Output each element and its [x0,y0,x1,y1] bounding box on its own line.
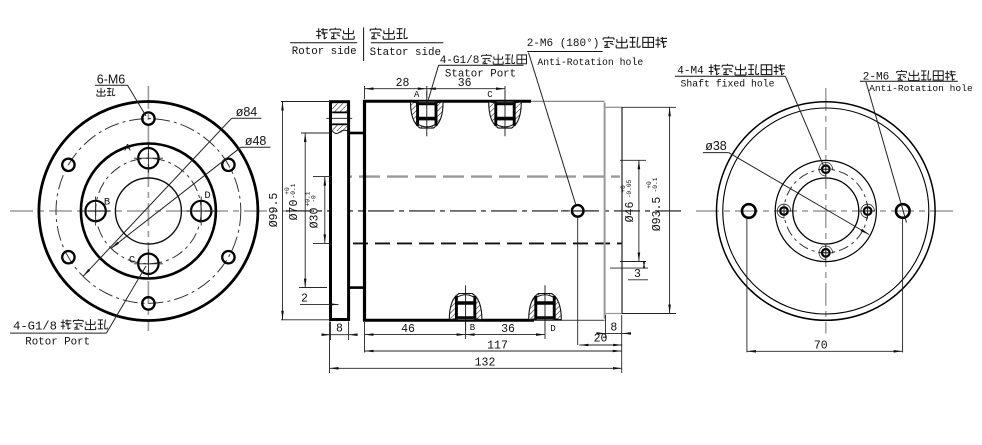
svg-text:36: 36 [501,323,515,336]
svg-text:70: 70 [814,340,828,353]
svg-text:-0.1: -0.1 [652,177,659,192]
svg-text:4-G1/8: 4-G1/8 [13,320,57,334]
svg-text:Ø99.5: Ø99.5 [268,193,281,228]
svg-text:4-M4: 4-M4 [677,66,704,78]
svg-text:8: 8 [336,323,343,336]
svg-text:Ø46: Ø46 [624,202,637,223]
svg-text:Shaft fixed hole: Shaft fixed hole [680,78,774,89]
svg-text:Rotor Port: Rotor Port [25,337,90,349]
svg-text:Anti-Rotation hole: Anti-Rotation hole [537,57,643,68]
svg-text:C: C [129,255,135,267]
svg-text:Stator side: Stator side [370,47,441,59]
svg-text:A: A [414,90,420,100]
svg-text:B: B [470,323,476,333]
svg-text:D: D [204,190,210,202]
svg-text:117: 117 [487,339,508,352]
svg-text:B: B [104,197,110,209]
svg-text:ø38: ø38 [705,139,727,153]
svg-text:-0: -0 [311,195,318,203]
svg-text:2: 2 [301,293,308,306]
svg-text:46: 46 [401,323,415,336]
svg-text:Ø93.5: Ø93.5 [651,197,664,232]
svg-text:-0.05: -0.05 [626,179,633,198]
svg-text:Anti-Rotation hole: Anti-Rotation hole [869,83,973,94]
svg-text:28: 28 [396,77,410,90]
svg-text:Stator Port: Stator Port [445,69,516,81]
svg-text:D: D [550,324,555,334]
svg-text:ø48: ø48 [245,134,267,148]
svg-text:Rotor side: Rotor side [292,46,357,58]
svg-text:-0.1: -0.1 [290,183,297,198]
svg-text:2-M6 (180°): 2-M6 (180°) [527,38,600,50]
svg-text:3: 3 [634,268,641,281]
svg-text:8: 8 [610,322,617,335]
svg-text:132: 132 [475,357,496,370]
svg-text:C: C [487,90,493,100]
svg-text:ø84: ø84 [236,105,258,119]
svg-text:Ø30: Ø30 [309,208,322,229]
svg-text:6-M6: 6-M6 [97,72,126,86]
svg-text:Ø70: Ø70 [288,200,301,221]
svg-text:A: A [124,143,131,155]
